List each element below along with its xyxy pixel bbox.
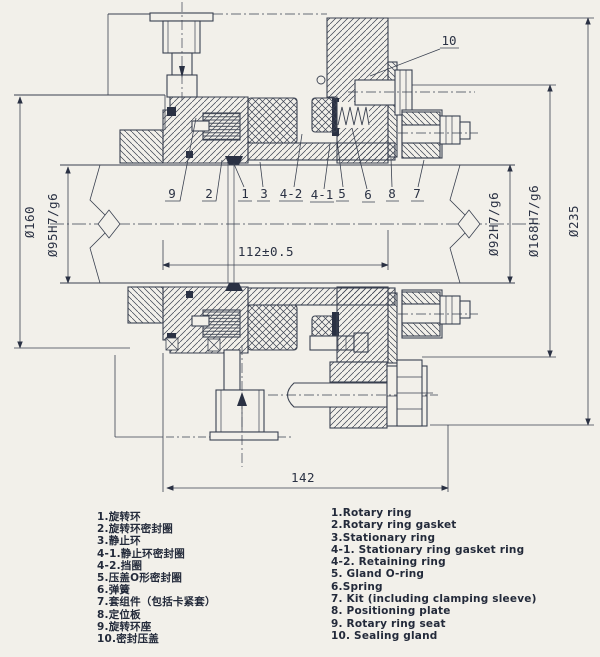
drain-port-bottom	[115, 345, 294, 467]
parts-list-item: 5. Gland O-ring	[331, 568, 537, 580]
dim-label-160: Ø160	[22, 206, 37, 238]
callout-9: 9	[168, 186, 176, 201]
dimensions	[14, 18, 594, 492]
gland-gasket-ring	[317, 76, 325, 84]
parts-list-item: 4-2. Retaining ring	[331, 556, 537, 568]
positioning-plate-lower	[388, 293, 397, 363]
scanned-technical-drawing-page: Ø160 Ø95H7/g6 112±0.5 Ø92H7/g6 Ø168H7/g6…	[0, 0, 600, 657]
gland-bolt-head-upper	[395, 70, 412, 115]
callout-1: 1	[241, 186, 249, 201]
upper-pipe-fitting	[398, 110, 478, 158]
dim-label-168: Ø168H7/g6	[526, 185, 541, 257]
callout-2: 2	[205, 186, 213, 201]
parts-list-en: 1.Rotary ring 2.Rotary ring gasket 3.Sta…	[331, 507, 537, 642]
parts-list-item: 7. Kit (including clamping sleeve)	[331, 593, 537, 605]
callout-5: 5	[338, 186, 346, 201]
callout-10: 10	[441, 33, 456, 48]
dim-label-92: Ø92H7/g6	[486, 192, 501, 256]
gland-bolt-shank-upper	[355, 80, 397, 105]
parts-list-item: 1.Rotary ring	[331, 507, 537, 519]
callout-3: 3	[260, 186, 268, 201]
rotary-seat-upper	[120, 97, 248, 163]
parts-list-item: 10.密封压盖	[97, 633, 216, 645]
parts-list-item: 2.旋转环密封圈	[97, 523, 216, 535]
mechanical-seal-section-drawing: Ø160 Ø95H7/g6 112±0.5 Ø92H7/g6 Ø168H7/g6…	[0, 0, 600, 505]
parts-list-item: 3.静止环	[97, 535, 216, 547]
parts-list-item: 9. Rotary ring seat	[331, 618, 537, 630]
parts-list-item: 9.旋转环座	[97, 621, 216, 633]
dim-label-235: Ø235	[566, 205, 581, 237]
fitting-bolt-head-upper	[440, 116, 460, 144]
parts-list-item: 8.定位板	[97, 609, 216, 621]
dim-label-112: 112±0.5	[238, 244, 294, 259]
parts-list-item: 3.Stationary ring	[331, 532, 537, 544]
parts-list-item: 5.压盖O形密封圈	[97, 572, 216, 584]
dim-label-95: Ø95H7/g6	[45, 193, 60, 257]
parts-list-item: 4-1.静止环密封圈	[97, 548, 216, 560]
callout-7: 7	[413, 186, 421, 201]
parts-list-cn: 1.旋转环 2.旋转环密封圈 3.静止环 4-1.静止环密封圈 4-2.挡圈 5…	[97, 511, 216, 645]
dim-label-142: 142	[291, 470, 315, 485]
flush-port-top	[150, 2, 213, 100]
sleeve-band-upper	[248, 143, 395, 160]
lower-pipe-fitting	[397, 290, 478, 426]
callout-4-2: 4-2	[280, 186, 303, 201]
parts-list-item: 7.套组件（包括卡紧套）	[97, 596, 216, 608]
callout-6: 6	[364, 187, 372, 202]
parts-list-item: 2.Rotary ring gasket	[331, 519, 537, 531]
parts-list-item: 8. Positioning plate	[331, 605, 537, 617]
seat-o-ring	[167, 107, 176, 116]
fitting-bolt-head-lower	[440, 296, 460, 324]
parts-list-item: 6.Spring	[331, 581, 537, 593]
parts-list-item: 4-1. Stationary ring gasket ring	[331, 544, 537, 556]
parts-list-item: 1.旋转环	[97, 511, 216, 523]
callout-8: 8	[388, 186, 396, 201]
callout-4-1: 4-1	[311, 187, 334, 202]
parts-list-item: 10. Sealing gland	[331, 630, 537, 642]
rotary-seat-lower	[128, 283, 248, 353]
parts-list-item: 6.弹簧	[97, 584, 216, 596]
parts-list-item: 4-2.挡圈	[97, 560, 216, 572]
